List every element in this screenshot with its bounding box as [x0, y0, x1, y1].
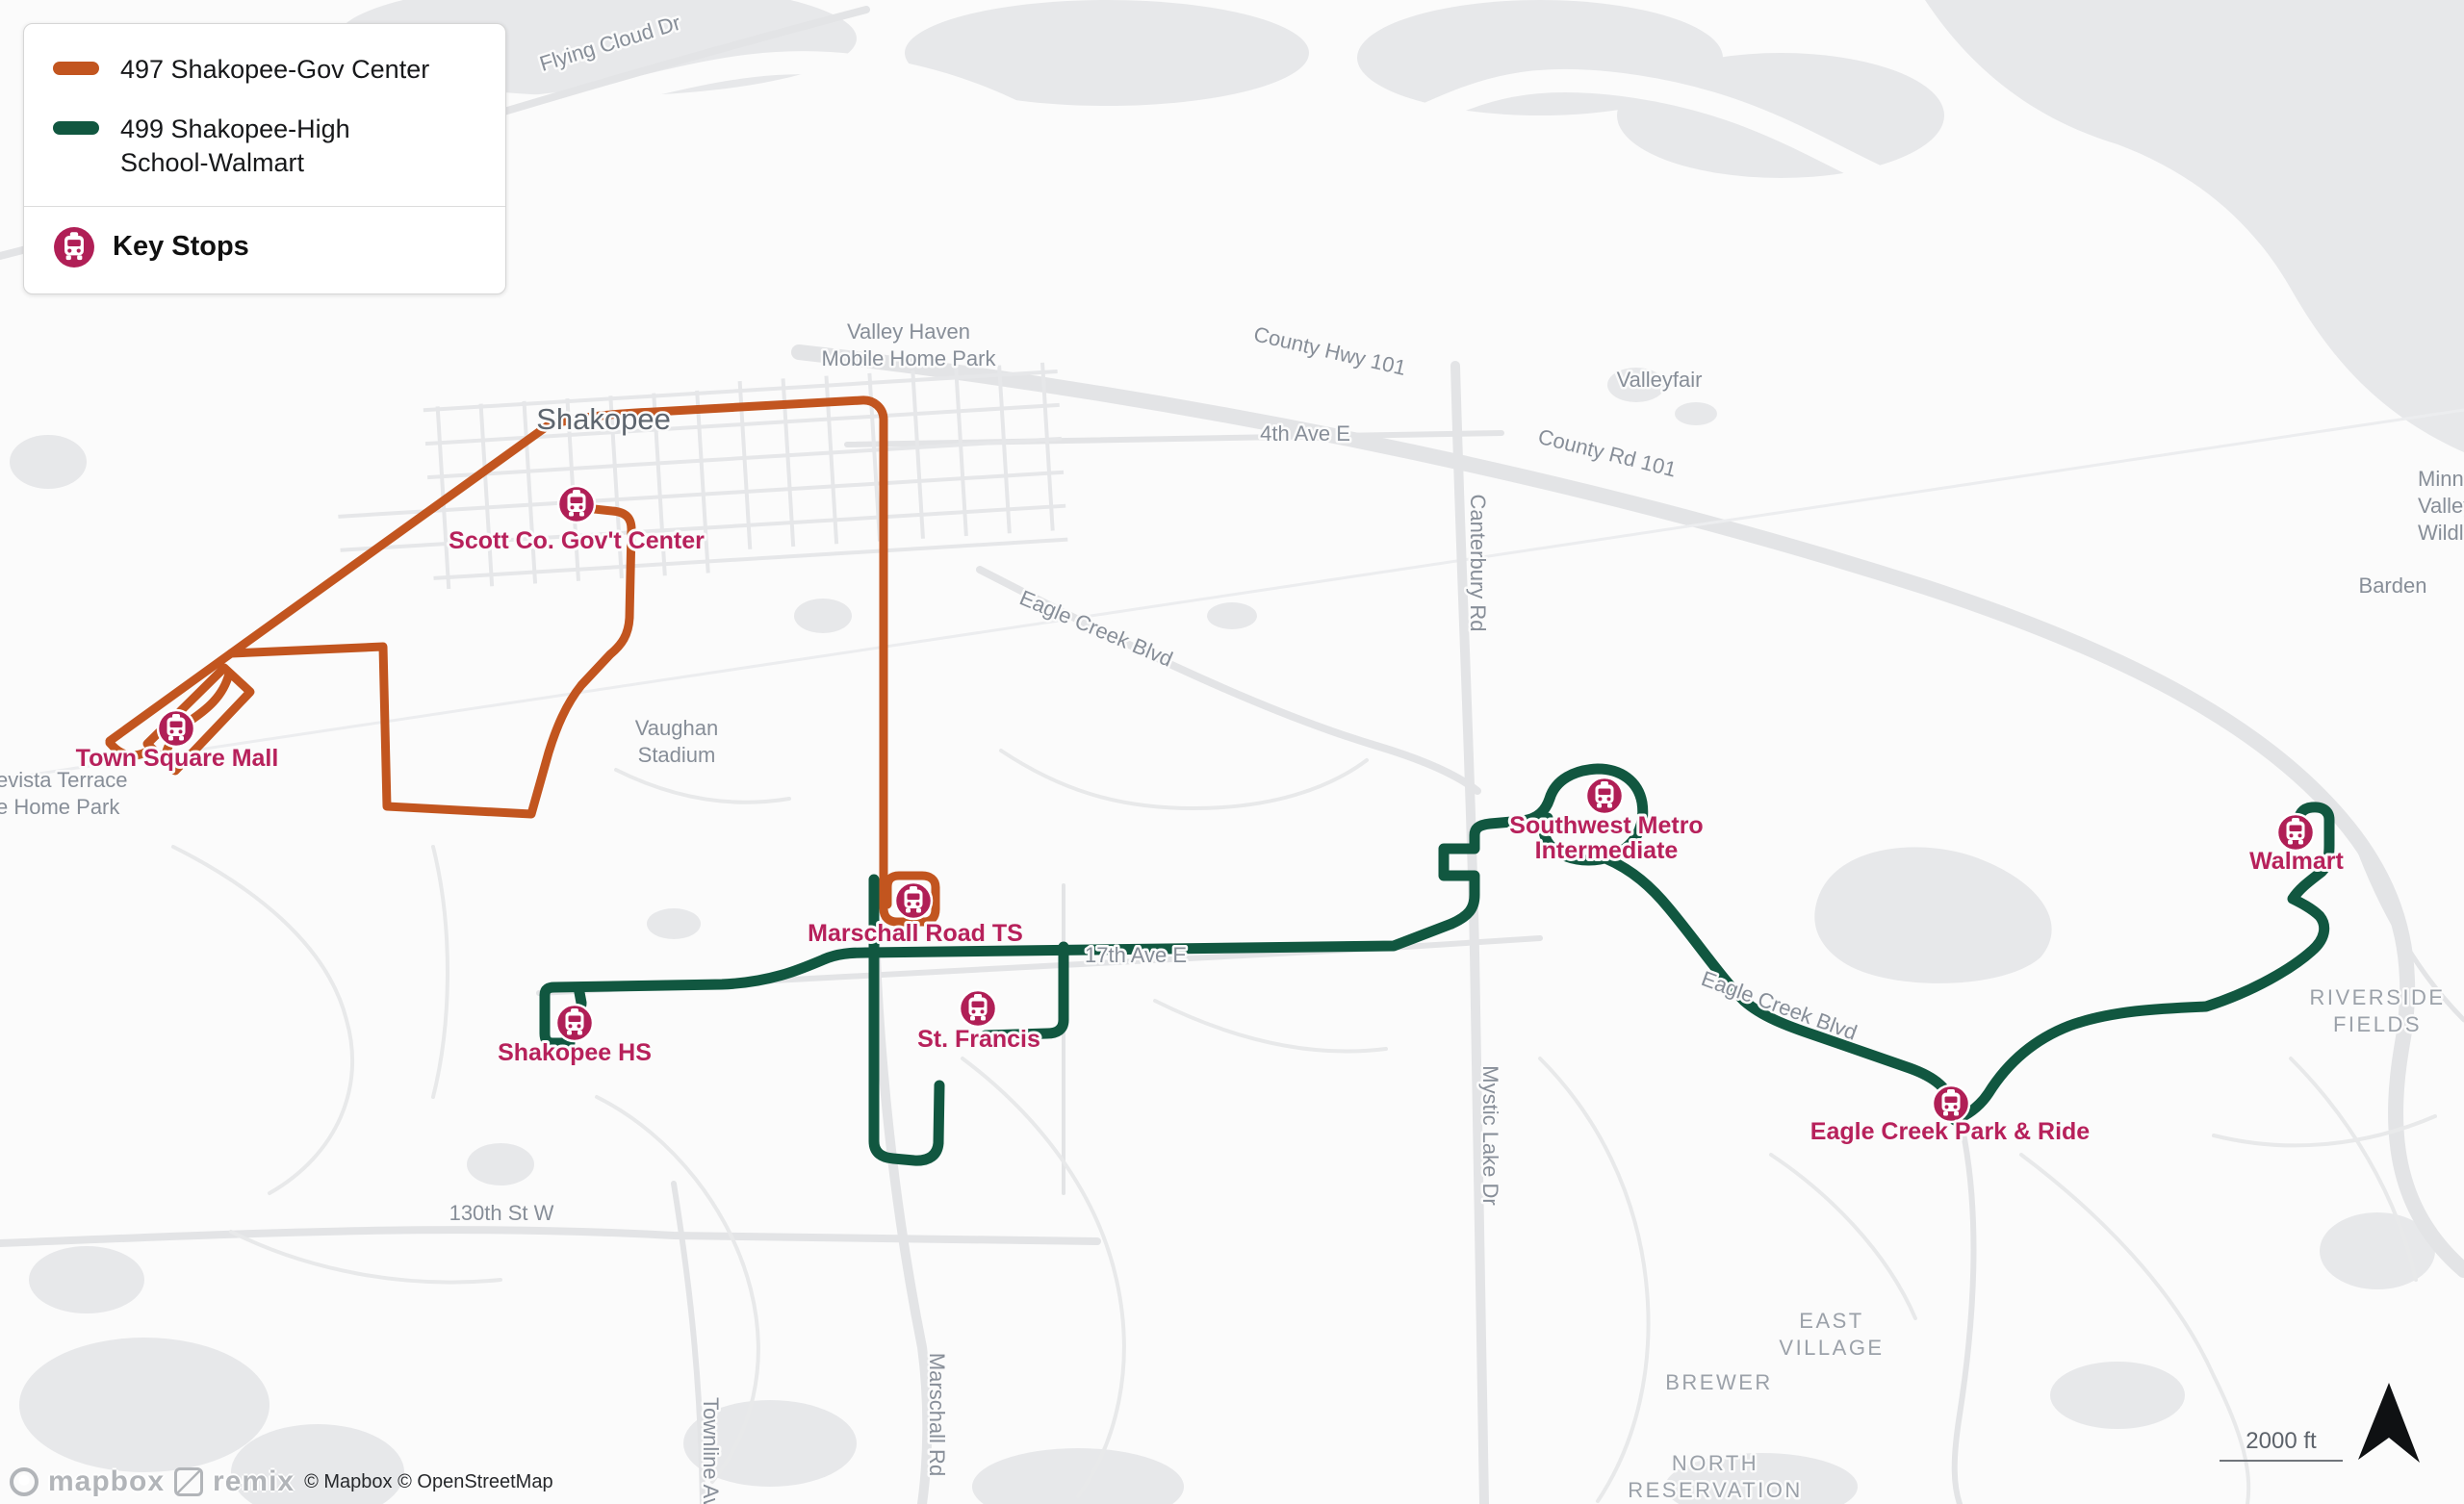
bus-stop-icon[interactable] [158, 710, 194, 747]
route-499-swatch [53, 121, 99, 135]
remix-icon [174, 1467, 203, 1496]
map-label: 17th Ave E [1085, 943, 1187, 967]
map-label: 4th Ave E [1260, 421, 1350, 446]
bus-stop-icon[interactable] [558, 486, 595, 523]
map-label: Town Square Mall [76, 745, 279, 772]
map-label: Eagle Creek Blvd [1698, 966, 1860, 1045]
map-label: Southwest MetroIntermediate [1509, 812, 1703, 864]
bus-stop-icon[interactable] [2277, 814, 2314, 851]
legend-panel: 497 Shakopee-Gov Center 499 Shakopee-Hig… [23, 23, 506, 294]
route-499-line [545, 953, 866, 1043]
north-arrow-icon [2356, 1383, 2422, 1466]
map-label: Shakopee [536, 402, 671, 436]
stop-eagle-creek-park-ride[interactable]: Eagle Creek Park & Ride [1810, 1085, 2091, 1145]
bus-stop-icon[interactable] [1586, 777, 1623, 814]
route-497-label: 497 Shakopee-Gov Center [120, 53, 429, 88]
mapbox-logo[interactable]: mapbox [48, 1466, 165, 1498]
bus-stop-icon [53, 226, 95, 268]
mapbox-pin-icon [10, 1467, 38, 1496]
map-viewport[interactable]: Flying Cloud DrValley HavenMobile Home P… [0, 0, 2464, 1504]
map-label: RIVERSIDEFIELDS [2309, 985, 2445, 1036]
map-label: MinneValley NWildlife [2418, 467, 2464, 545]
map-label: County Hwy 101 [1251, 321, 1408, 380]
map-label: Scott Co. Gov't Center [449, 527, 705, 554]
stop-shakopee-hs[interactable]: Shakopee HS [498, 1005, 652, 1066]
stop-st-francis[interactable]: St. Francis [917, 990, 1040, 1053]
map-label: Walmart [2249, 848, 2344, 875]
map-label: Marschall Road TS [808, 920, 1023, 947]
map-label: Marschall Rd [925, 1353, 949, 1476]
legend-row-499: 499 Shakopee-High School-Walmart [53, 113, 476, 181]
bus-stop-icon[interactable] [960, 990, 996, 1027]
map-label: Eagle Creek Blvd [1016, 585, 1176, 671]
map-label: Eagle Creek Park & Ride [1810, 1118, 2091, 1145]
downtown-grid [331, 362, 1068, 596]
scale-text: 2000 ft [2220, 1428, 2343, 1455]
bus-stop-icon[interactable] [556, 1005, 593, 1041]
route-499-label: 499 Shakopee-High School-Walmart [120, 113, 438, 181]
key-stops-label: Key Stops [113, 231, 249, 263]
attribution-text[interactable]: © Mapbox © OpenStreetMap [304, 1471, 553, 1493]
route-497-swatch [53, 62, 99, 75]
stop-marschall-road-ts[interactable]: Marschall Road TS [808, 882, 1023, 947]
remix-logo[interactable]: remix [213, 1466, 295, 1498]
map-label: 130th St W [449, 1201, 554, 1225]
map-label: Mystic Lake Dr [1478, 1065, 1502, 1205]
map-label: EASTVILLAGE [1779, 1309, 1884, 1360]
map-label: St. Francis [917, 1026, 1040, 1053]
map-label: BREWER [1665, 1370, 1773, 1394]
bus-stop-icon[interactable] [1933, 1085, 1969, 1122]
map-label: Townline Ave [699, 1397, 723, 1504]
map-label: Canterbury Rd [1466, 494, 1490, 631]
key-stops: Scott Co. Gov't CenterTown Square MallMa… [76, 486, 2345, 1145]
map-label: Valley HavenMobile Home Park [822, 319, 997, 370]
scale-bar: 2000 ft [2220, 1428, 2343, 1462]
route-499-line [986, 947, 1064, 1035]
map-label: Shakopee HS [498, 1039, 652, 1066]
legend-key-stops-row: Key Stops [53, 207, 476, 293]
map-label: evista Terracee Home Park [0, 768, 128, 819]
legend-row-497: 497 Shakopee-Gov Center [53, 53, 476, 88]
stop-southwest-metro-intermediate[interactable]: Southwest MetroIntermediate [1509, 777, 1703, 864]
scale-line [2220, 1460, 2343, 1462]
map-label: County Rd 101 [1536, 424, 1679, 482]
map-label: Valleyfair [1617, 368, 1703, 392]
map-label: VaughanStadium [635, 716, 718, 767]
map-label: Barden [2359, 574, 2427, 598]
bus-stop-icon[interactable] [895, 882, 932, 919]
attribution-bar: mapbox remix © Mapbox © OpenStreetMap [10, 1466, 553, 1498]
